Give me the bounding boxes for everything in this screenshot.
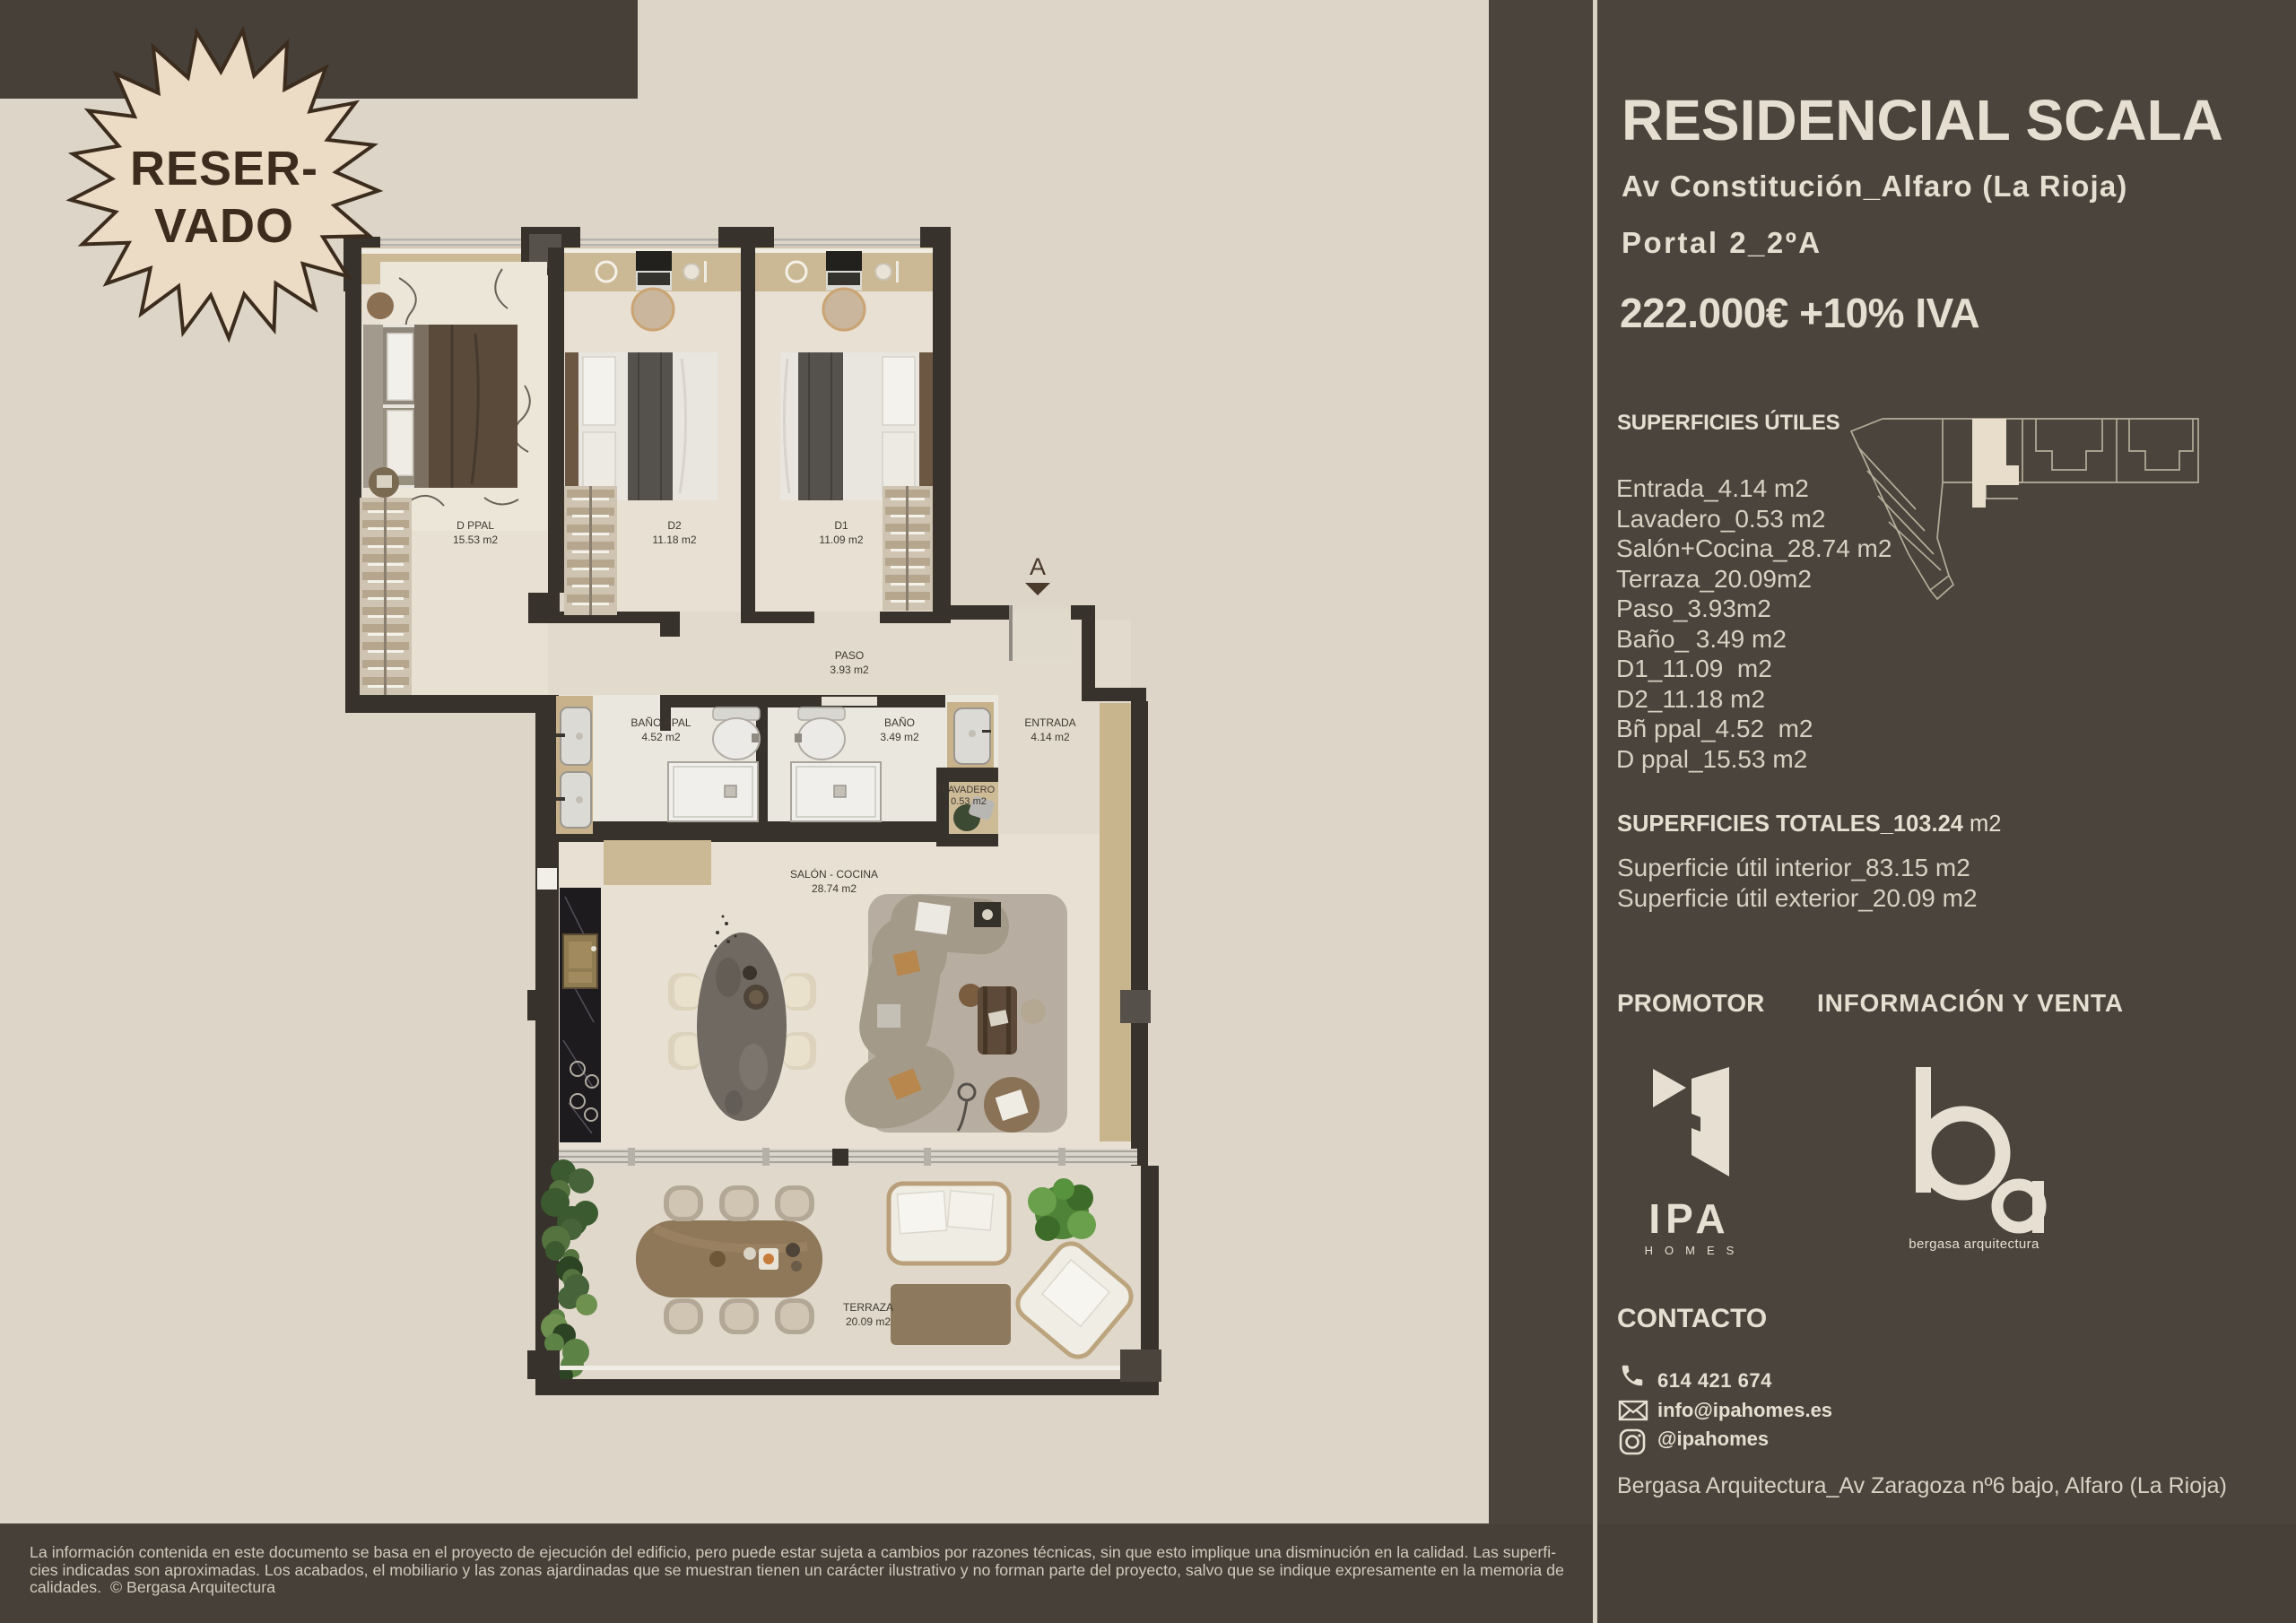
svg-text:4.14 m2: 4.14 m2: [1031, 731, 1070, 743]
svg-text:TERRAZA: TERRAZA: [843, 1301, 893, 1314]
svg-text:IPA: IPA: [1648, 1195, 1730, 1242]
svg-text:LAVADERO: LAVADERO: [943, 785, 996, 795]
svg-text:RESER-: RESER-: [130, 142, 318, 195]
svg-text:HOMES: HOMES: [1645, 1244, 1746, 1257]
svg-text:bergasa arquitectura: bergasa arquitectura: [1909, 1237, 2039, 1252]
svg-text:BAÑO PPAL: BAÑO PPAL: [631, 716, 691, 729]
svg-text:20.09 m2: 20.09 m2: [846, 1315, 891, 1328]
svg-text:ENTRADA: ENTRADA: [1024, 716, 1075, 729]
svg-text:D PPAL: D PPAL: [457, 519, 494, 532]
svg-text:0.53 m2: 0.53 m2: [951, 796, 987, 807]
svg-text:D2: D2: [667, 519, 682, 532]
svg-text:11.18 m2: 11.18 m2: [652, 534, 696, 546]
svg-text:11.09 m2: 11.09 m2: [819, 534, 863, 546]
svg-text:4.52 m2: 4.52 m2: [641, 731, 681, 743]
svg-text:A: A: [1030, 553, 1046, 580]
svg-text:BAÑO: BAÑO: [884, 716, 915, 729]
svg-text:15.53 m2: 15.53 m2: [453, 534, 498, 546]
svg-text:VADO: VADO: [154, 199, 294, 253]
svg-text:28.74 m2: 28.74 m2: [812, 882, 857, 895]
svg-text:D1: D1: [834, 519, 848, 532]
svg-text:3.49 m2: 3.49 m2: [880, 731, 919, 743]
svg-text:PASO: PASO: [835, 649, 864, 662]
svg-text:SALÓN - COCINA: SALÓN - COCINA: [790, 867, 878, 881]
svg-text:3.93 m2: 3.93 m2: [830, 664, 869, 676]
